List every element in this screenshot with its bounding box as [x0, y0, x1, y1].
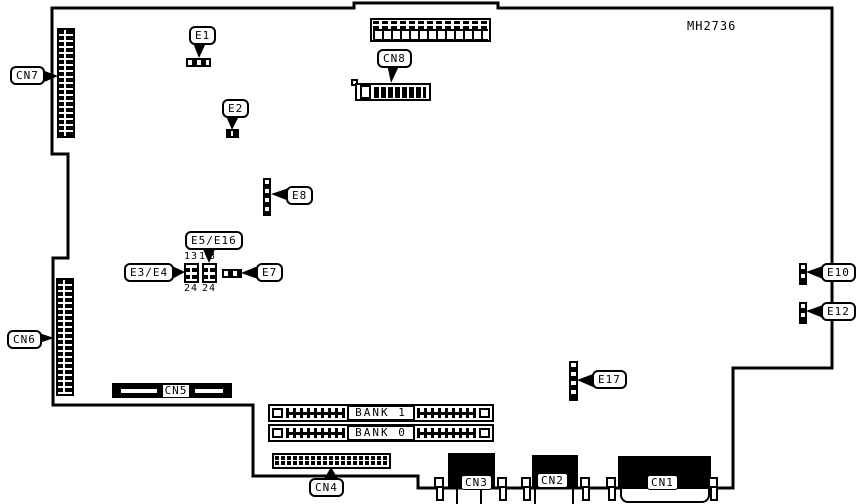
- top-edge-connector-contacts: [373, 21, 488, 29]
- e10-callout: E10: [821, 263, 856, 282]
- bank0-pins-right: [417, 428, 476, 438]
- cn4-pin-row-bottom: [275, 461, 388, 465]
- e17-callout: E17: [592, 370, 627, 389]
- cn2-front-leg-left: [534, 489, 536, 504]
- cn8-first-cell: [360, 85, 371, 99]
- bracket-cn1-right: [708, 477, 718, 488]
- cn5-connector: CN5: [112, 383, 232, 398]
- bank0-pins-left: [286, 428, 345, 438]
- bracket-leg-cn3-left: [436, 488, 444, 501]
- e3-e4-pin-top: 13: [184, 252, 198, 262]
- cn4-pin-row-top: [275, 456, 388, 460]
- bank0-end-cap-right: [479, 428, 490, 438]
- e17-jumper: [569, 361, 578, 401]
- bank1-end-cap-left: [272, 408, 283, 418]
- bracket-leg-cn1-right: [710, 488, 718, 501]
- bracket-cn1-left: [606, 477, 616, 488]
- top-edge-connector: [370, 18, 491, 42]
- cn8-switch-cells: [374, 87, 426, 98]
- cn8-callout: CN8: [377, 49, 412, 68]
- e7-callout: E7: [256, 263, 283, 282]
- cn1-dsub-face: [620, 489, 710, 503]
- e2-callout: E2: [222, 99, 249, 118]
- e8-jumper: [263, 178, 271, 216]
- cn7-connector: [57, 28, 75, 138]
- bank1-pins-right: [417, 408, 476, 418]
- bracket-leg-cn2-left: [523, 488, 531, 501]
- bracket-leg-cn3-right: [499, 488, 507, 501]
- e5-e16-jumper-block: [202, 263, 217, 283]
- cn3-front-leg-left: [456, 489, 458, 504]
- bank0-simm-socket: BANK 0: [268, 424, 494, 442]
- e1-callout: E1: [189, 26, 216, 45]
- cn5-slot-left: [121, 389, 157, 393]
- e8-callout: E8: [286, 186, 313, 205]
- cn4-connector: [272, 453, 391, 469]
- bracket-cn3-left: [434, 477, 444, 488]
- board-part-number: MH2736: [687, 19, 736, 33]
- e5-e16-pin-top: 13: [199, 252, 219, 262]
- bracket-leg-cn2-right: [582, 488, 590, 501]
- cn5-slot-right: [195, 389, 223, 393]
- cn8-dip-switch: [355, 83, 431, 101]
- bank1-label: BANK 1: [347, 405, 415, 421]
- cn6-callout: CN6: [7, 330, 42, 349]
- cn2-label: CN2: [537, 473, 568, 488]
- bank1-pins-left: [286, 408, 345, 418]
- e5-e16-pin-bottom: 24: [202, 284, 216, 294]
- e3-e4-callout: E3/E4: [124, 263, 174, 282]
- bank0-label: BANK 0: [347, 425, 415, 441]
- bracket-leg-cn1-left: [608, 488, 616, 501]
- e5-e16-callout: E5/E16: [185, 231, 243, 250]
- e12-jumper: [799, 302, 807, 324]
- bank0-end-cap-left: [272, 428, 283, 438]
- bank1-end-cap-right: [479, 408, 490, 418]
- top-edge-connector-sockets: [373, 29, 488, 40]
- e3-e4-pin-bottom: 24: [184, 284, 198, 294]
- e10-jumper: [799, 263, 807, 285]
- e3-e4-jumper-block: [184, 263, 199, 283]
- e12-callout: E12: [821, 302, 856, 321]
- cn4-callout: CN4: [309, 478, 344, 497]
- cn5-label: CN5: [162, 384, 191, 398]
- e1-jumper: [186, 58, 211, 67]
- cn2-front-leg-right: [572, 489, 574, 504]
- cn1-label: CN1: [647, 475, 678, 490]
- bracket-cn2-left: [521, 477, 531, 488]
- e2-jumper: [226, 129, 239, 138]
- e7-jumper: [222, 269, 242, 278]
- bracket-cn3-right: [497, 477, 507, 488]
- cn6-connector: [56, 278, 74, 396]
- cn3-label: CN3: [461, 475, 492, 490]
- bank1-simm-socket: BANK 1: [268, 404, 494, 422]
- bracket-cn2-right: [580, 477, 590, 488]
- board-diagram: MH2736 13 24 13 24 CN5 BANK 1 BANK: [0, 0, 858, 504]
- cn3-front-leg-right: [480, 489, 482, 504]
- cn7-callout: CN7: [10, 66, 45, 85]
